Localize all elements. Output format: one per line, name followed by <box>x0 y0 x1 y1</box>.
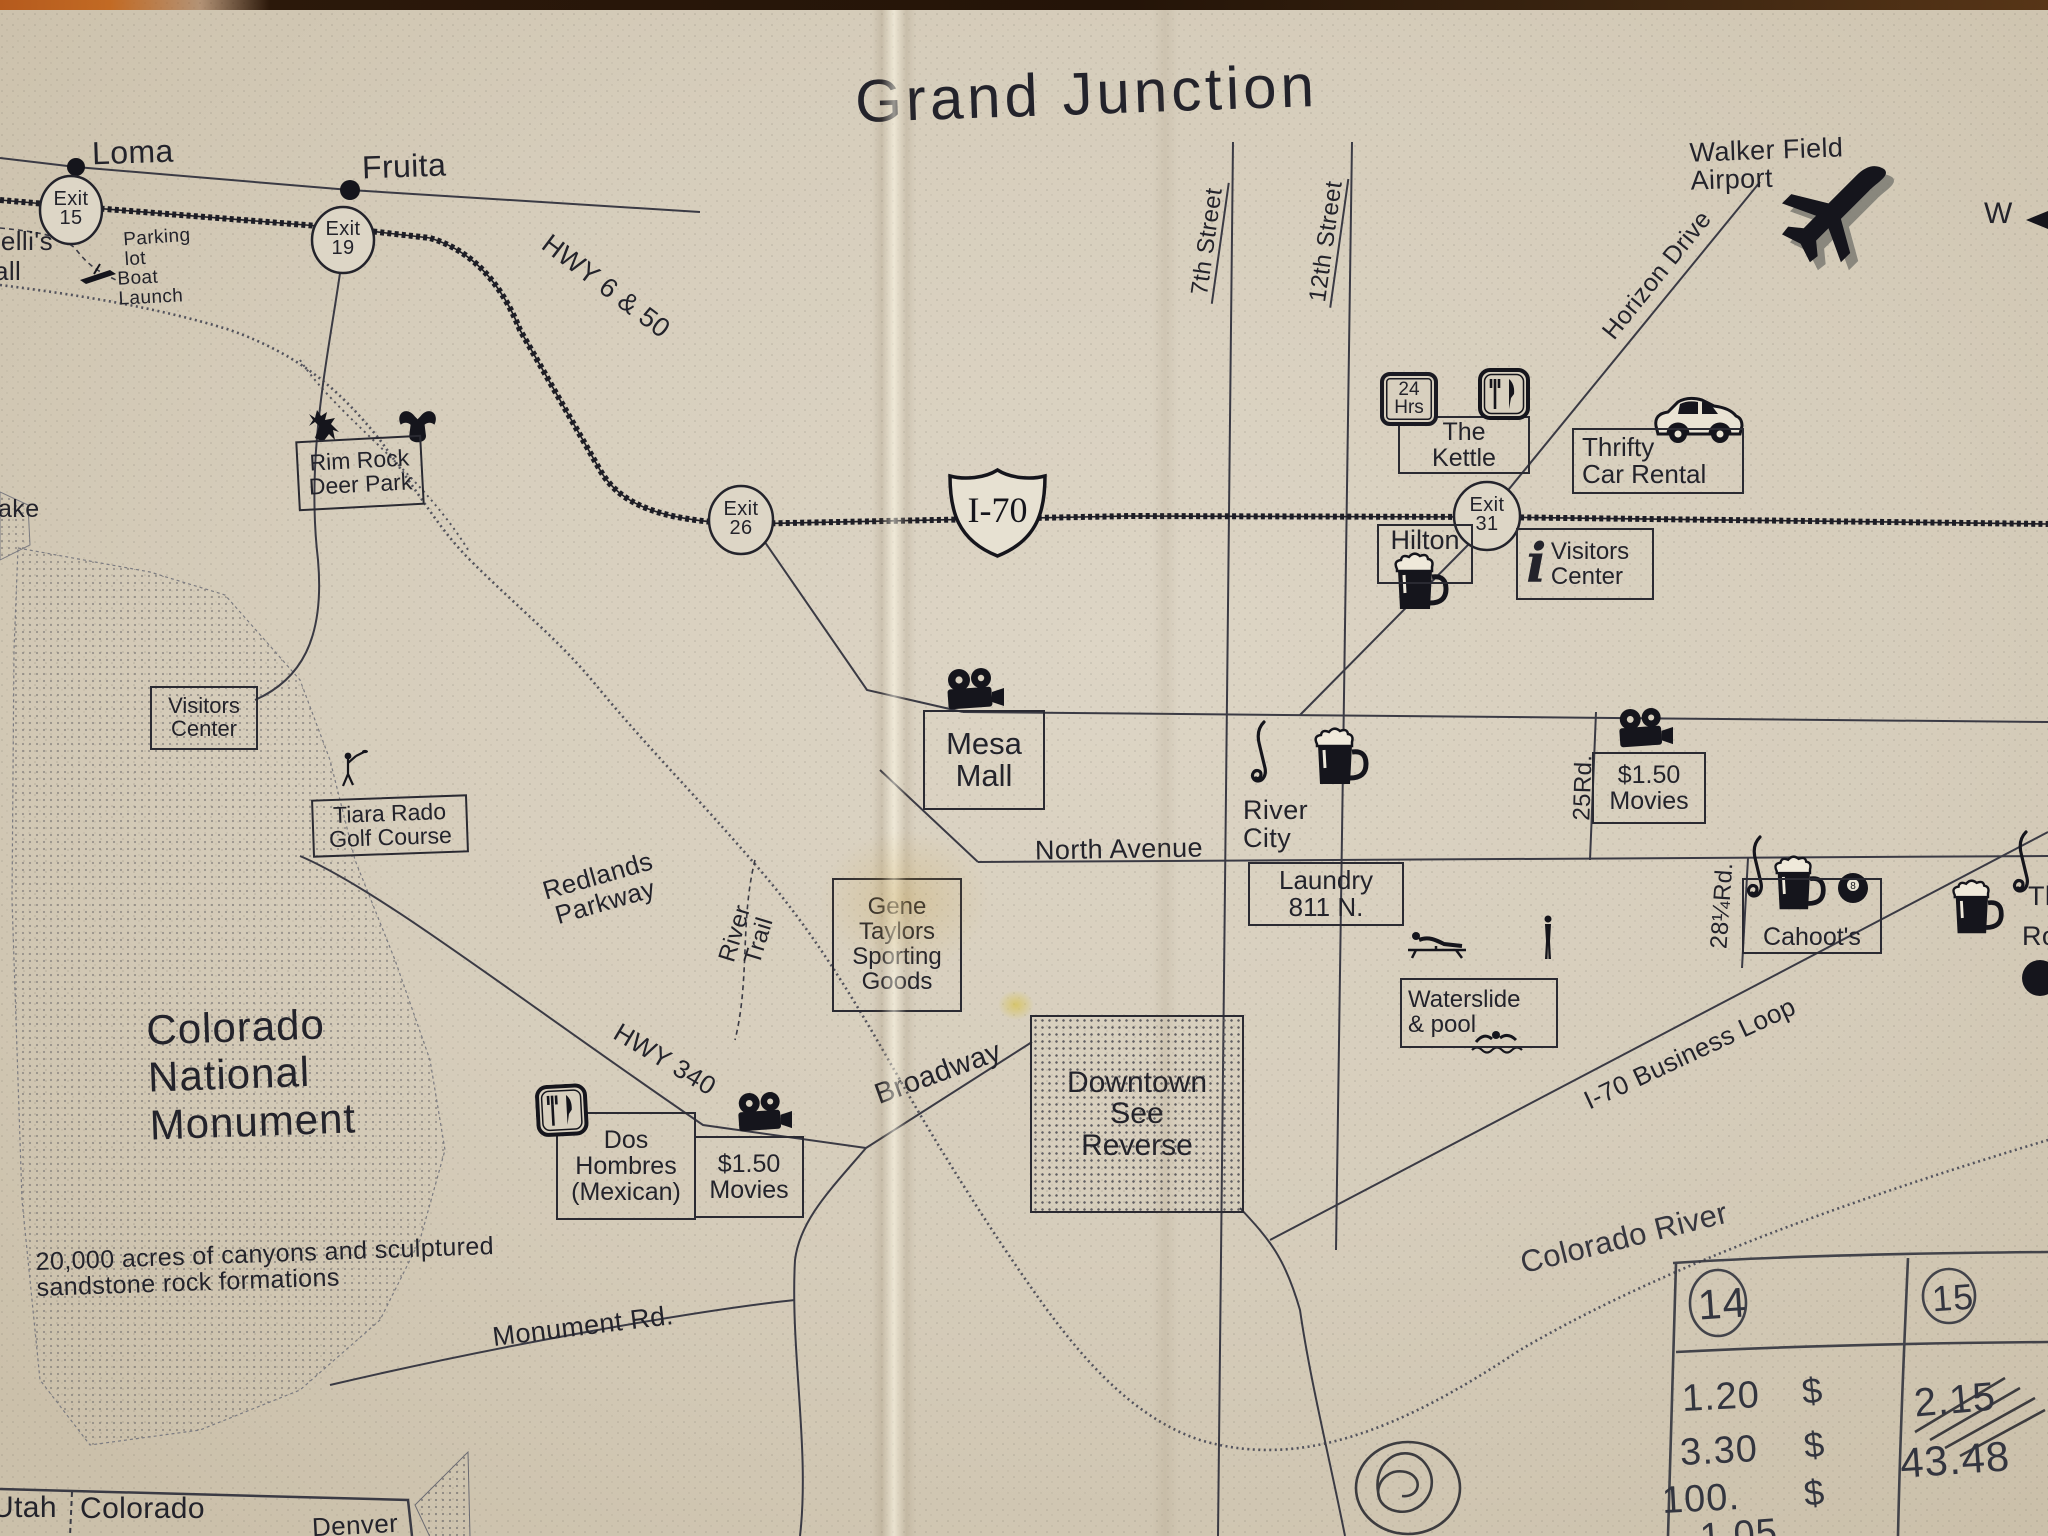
exit-19-label: Exit 19 <box>313 220 373 258</box>
poi-gene-taylors-box: Gene Taylors Sporting Goods <box>832 878 962 1012</box>
poi-mesa-mall-box: Mesa Mall <box>923 710 1045 810</box>
poi-laundry-box: Laundry 811 N. <box>1248 862 1404 926</box>
poi-parking-lot-label: Parking lot <box>123 226 193 270</box>
poi-cahoots-box: Cahoot's <box>1742 878 1882 954</box>
poi-hilton-box: Hilton <box>1377 524 1473 584</box>
hand-col-15: 15 <box>1931 1276 1976 1321</box>
table-edge <box>0 0 2048 10</box>
poi-tiara-rado-box: Tiara Rado Golf Course <box>311 794 469 857</box>
hand-d2: $ <box>1802 1423 1827 1467</box>
map-photo: I-70 8 <box>0 0 2048 1536</box>
hand-a2: 3.30 <box>1679 1428 1759 1475</box>
poi-river-city-label: River City <box>1243 796 1308 853</box>
info-icon: i <box>1518 542 1551 585</box>
poi-waterslide-box: Waterslide & pool <box>1400 978 1558 1048</box>
hand-b1: 2.15 <box>1912 1375 1997 1427</box>
poi-visitors-center-west-box: Visitors Center <box>150 686 258 750</box>
town-label-loma: Loma <box>91 135 174 171</box>
road-label-north-avenue: North Avenue <box>1035 834 1203 865</box>
partial-label-lake: ake <box>0 496 40 522</box>
poi-airport-label: Walker Field Airport <box>1689 133 1845 195</box>
poi-thrifty-box: Thrifty Car Rental <box>1572 428 1744 494</box>
partial-label-right-1: Th <box>2028 882 2048 910</box>
exit-26-label: Exit 26 <box>711 500 771 538</box>
town-label-fruita: Fruita <box>361 149 446 186</box>
poi-visitors-center-east-label: Visitors Center <box>1551 539 1629 589</box>
inset-colorado-label: Colorado <box>80 1493 205 1525</box>
poi-downtown-box: Downtown See Reverse <box>1030 1015 1244 1213</box>
hand-col-14: 14 <box>1696 1278 1748 1329</box>
restaurant-icon <box>1478 368 1538 428</box>
hand-a1: 1.20 <box>1681 1374 1761 1421</box>
map-title: Grand Junction <box>854 54 1319 133</box>
partial-label-left-1: belli's <box>0 228 53 255</box>
poi-boat-launch-label: Boat Launch <box>117 266 184 309</box>
svg-text:I-70: I-70 <box>968 490 1028 530</box>
poi-movies-west-box: $1.50 Movies <box>694 1136 804 1218</box>
poi-movies-east-box: $1.50 Movies <box>1592 752 1706 824</box>
poi-rim-rock-box: Rim Rock Deer Park <box>295 435 424 511</box>
loma-dot <box>67 158 85 176</box>
partial-label-left-2: all <box>0 258 21 285</box>
inset-denver-label: Denver <box>311 1510 399 1536</box>
poi-cnm-title: Colorado National Monument <box>146 999 357 1148</box>
poi-visitors-center-east-box: i Visitors Center <box>1516 528 1654 600</box>
compass-w-label: W <box>1984 198 2013 230</box>
poi-kettle-24hrs-badge: 24 Hrs <box>1380 372 1438 426</box>
partial-label-right-2: Ro <box>2022 922 2048 950</box>
restaurant-icon <box>534 1082 597 1147</box>
exit-15-label: Exit 15 <box>41 190 101 228</box>
hand-d3: $ <box>1802 1471 1827 1515</box>
fruita-dot <box>340 180 360 200</box>
hand-b2: 43.48 <box>1898 1432 2011 1488</box>
inset-utah-label: Utah <box>0 1492 57 1524</box>
hand-a4: 1.05 <box>1699 1511 1780 1536</box>
hand-d1: $ <box>1800 1369 1825 1413</box>
